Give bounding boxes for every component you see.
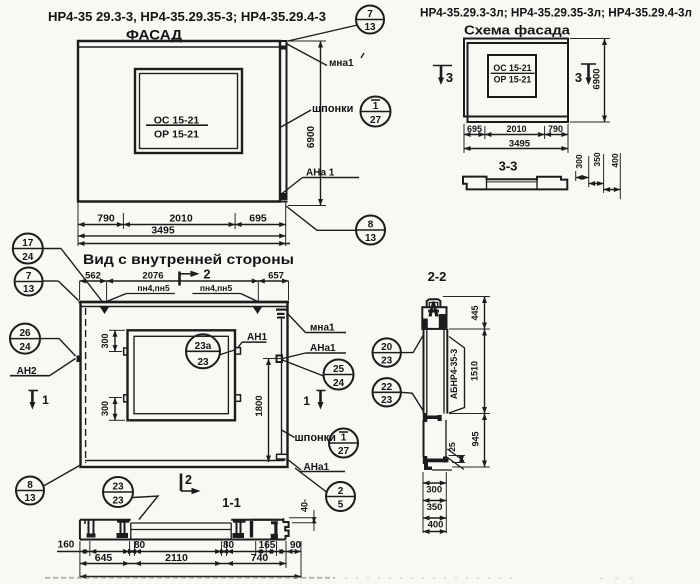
svg-text:25: 25 — [333, 364, 345, 375]
svg-text:300: 300 — [426, 485, 442, 496]
svg-text:3495: 3495 — [151, 225, 175, 237]
svg-text:ОР 15-21: ОР 15-21 — [494, 75, 532, 85]
svg-text:23: 23 — [381, 395, 393, 406]
svg-text:НР4-35.29.3-3л; НР4-35.29.35-3: НР4-35.29.3-3л; НР4-35.29.35-3л; НР4-35.… — [420, 8, 692, 20]
svg-text:13: 13 — [365, 233, 377, 244]
svg-text:300: 300 — [574, 154, 584, 168]
svg-text:27: 27 — [338, 446, 350, 457]
svg-text:пн4,пн5: пн4,пн5 — [137, 283, 170, 293]
svg-text:23: 23 — [197, 357, 209, 368]
svg-text:945: 945 — [471, 431, 481, 446]
svg-text:23: 23 — [381, 355, 393, 366]
svg-text:27: 27 — [370, 115, 382, 126]
svg-text:25: 25 — [447, 442, 457, 452]
svg-text:790: 790 — [97, 213, 115, 225]
svg-text:2010: 2010 — [506, 124, 526, 134]
svg-text:3: 3 — [575, 70, 582, 85]
svg-text:3: 3 — [446, 70, 453, 85]
svg-text:165: 165 — [259, 540, 276, 551]
svg-text:1: 1 — [303, 394, 310, 408]
svg-text:17: 17 — [22, 238, 34, 249]
svg-text:80: 80 — [134, 540, 146, 551]
svg-text:1: 1 — [341, 433, 347, 444]
svg-text:2076: 2076 — [142, 271, 163, 282]
svg-text:24: 24 — [333, 378, 345, 389]
svg-text:2: 2 — [185, 473, 192, 487]
svg-text:400: 400 — [610, 153, 620, 167]
svg-text:13: 13 — [23, 284, 35, 295]
svg-text:90: 90 — [290, 540, 302, 551]
svg-text:300: 300 — [100, 401, 110, 416]
svg-text:3-3: 3-3 — [499, 159, 518, 174]
svg-text:790: 790 — [548, 124, 563, 134]
svg-text:6900: 6900 — [592, 68, 603, 89]
svg-text:5: 5 — [338, 500, 344, 511]
svg-text:160: 160 — [58, 540, 75, 551]
svg-text:АБНР4-35-3: АБНР4-35-3 — [449, 349, 459, 399]
svg-text:24: 24 — [22, 252, 34, 263]
svg-text:Вид с внутренней стороны: Вид с внутренней стороны — [83, 252, 294, 267]
svg-text:шпонки: шпонки — [312, 103, 353, 115]
svg-text:2: 2 — [204, 268, 211, 282]
svg-text:400: 400 — [428, 520, 444, 531]
svg-text:13: 13 — [364, 22, 376, 33]
svg-text:350: 350 — [592, 152, 602, 166]
svg-text:3495: 3495 — [509, 139, 531, 150]
svg-text:657: 657 — [268, 271, 284, 282]
svg-text:23: 23 — [112, 482, 124, 493]
svg-text:23а: 23а — [195, 341, 212, 352]
svg-text:ОС 15-21: ОС 15-21 — [493, 63, 531, 73]
svg-text:2: 2 — [338, 486, 344, 497]
svg-text:13: 13 — [24, 493, 36, 504]
svg-text:2110: 2110 — [165, 552, 188, 564]
svg-text:7: 7 — [26, 271, 32, 282]
svg-text:НР4-35 29.3-3, НР4-35.29.35-3;: НР4-35 29.3-3, НР4-35.29.35-3; НР4-35.29… — [48, 9, 326, 24]
svg-text:1510: 1510 — [470, 361, 480, 381]
svg-text:740: 740 — [251, 552, 269, 564]
svg-text:1: 1 — [373, 101, 379, 112]
svg-text:2-2: 2-2 — [428, 269, 447, 284]
svg-text:1: 1 — [42, 393, 49, 407]
svg-text:ОР 15-21: ОР 15-21 — [154, 129, 199, 141]
svg-text:7: 7 — [367, 9, 373, 20]
svg-text:8: 8 — [27, 480, 33, 491]
svg-text:24: 24 — [19, 342, 31, 353]
svg-text:445: 445 — [470, 305, 480, 320]
svg-text:300: 300 — [100, 333, 110, 348]
svg-text:6900: 6900 — [306, 125, 317, 148]
svg-text:20: 20 — [381, 342, 393, 353]
svg-text:350: 350 — [427, 502, 443, 513]
svg-text:пн4,пн5: пн4,пн5 — [200, 283, 233, 293]
svg-text:645: 645 — [95, 552, 113, 564]
svg-text:40-: 40- — [300, 499, 310, 512]
svg-text:26: 26 — [19, 328, 31, 339]
svg-text:1-1: 1-1 — [222, 495, 241, 510]
svg-text:80: 80 — [223, 540, 235, 551]
svg-text:22: 22 — [381, 382, 393, 393]
svg-text:мна1: мна1 — [329, 58, 354, 69]
svg-text:695: 695 — [249, 213, 267, 225]
svg-text:1800: 1800 — [254, 395, 265, 416]
svg-text:8: 8 — [368, 220, 374, 231]
svg-text:2010: 2010 — [169, 213, 193, 225]
svg-text:23: 23 — [112, 496, 124, 507]
svg-text:562: 562 — [85, 271, 101, 282]
svg-text:695: 695 — [467, 124, 482, 134]
svg-text:Схема фасада: Схема фасада — [464, 23, 571, 38]
